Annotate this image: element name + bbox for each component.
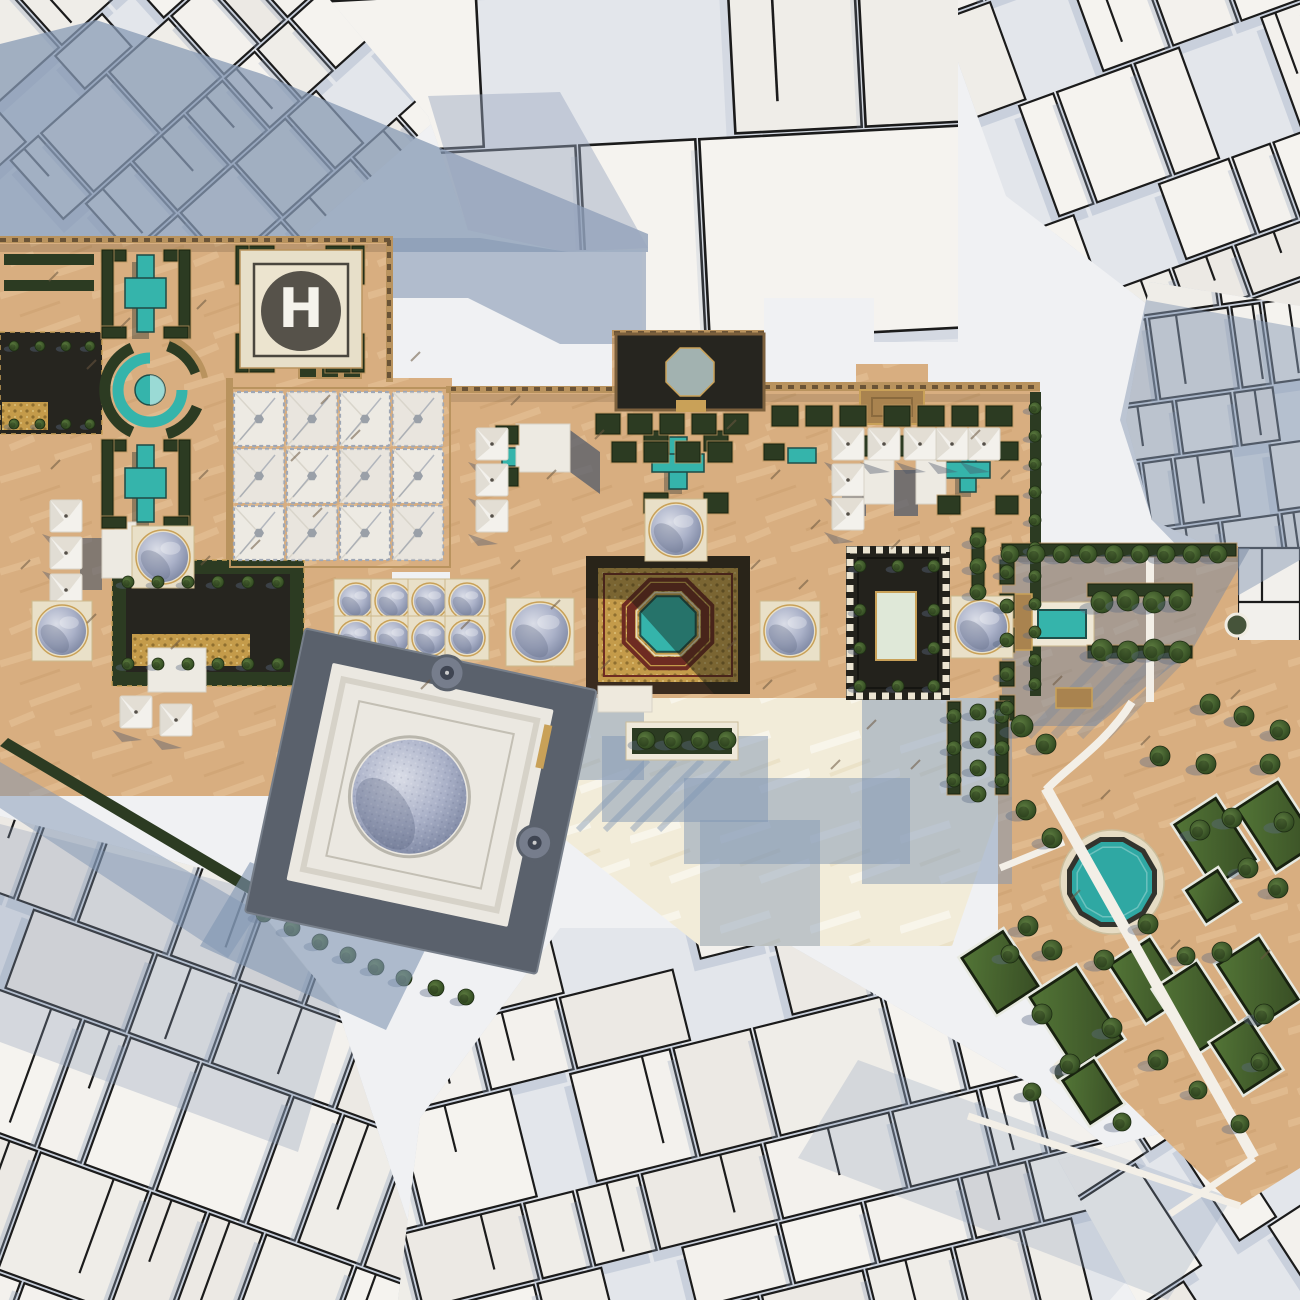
dome-highlight: [354, 591, 367, 599]
courts-rect: [876, 592, 916, 660]
tree-blotch: [1013, 722, 1025, 734]
tree-blotch: [996, 778, 1004, 786]
tree-blotch: [460, 994, 469, 1003]
tree-blotch: [1171, 596, 1183, 608]
hedge-box: [102, 250, 113, 338]
dome-highlight: [537, 615, 559, 630]
tree-blotch: [929, 608, 936, 615]
tree-blotch: [855, 564, 862, 571]
canopy-pin: [64, 551, 68, 555]
dome-highlight: [354, 628, 367, 636]
tree-blotch: [972, 737, 981, 746]
hedge-box: [938, 496, 960, 514]
tree-blotch: [972, 765, 981, 774]
tree-blotch: [1119, 596, 1131, 608]
hedge-box: [102, 517, 126, 528]
canopy-pin: [918, 442, 922, 446]
tree-blotch: [893, 684, 900, 691]
courts-ngon: [666, 348, 714, 396]
tree-blotch: [62, 344, 68, 350]
structures-rect: [516, 424, 570, 472]
canopy-pin: [846, 442, 850, 446]
walls-rect: [4, 254, 94, 265]
tree-blotch: [273, 662, 280, 669]
canopy-pin: [134, 710, 138, 714]
tree-blotch: [1030, 602, 1037, 609]
dome-highlight: [788, 616, 807, 628]
tree-blotch: [1093, 646, 1105, 658]
tree-blotch: [183, 662, 190, 669]
tree-blotch: [972, 791, 981, 800]
canopy-pin: [950, 442, 954, 446]
tree-blotch: [1030, 406, 1037, 413]
tree-blotch: [1062, 1061, 1073, 1072]
dome-highlight: [428, 591, 441, 599]
tree-blotch: [1030, 630, 1037, 637]
tree-blotch: [1270, 885, 1281, 896]
city-block: [727, 0, 861, 133]
canopy-pin: [882, 442, 886, 446]
ground-shadows-rect: [862, 698, 1012, 884]
hedge-box: [644, 442, 668, 462]
tree-blotch: [1030, 658, 1037, 665]
hedge-box: [179, 440, 190, 528]
tree-blotch: [1018, 807, 1029, 818]
dome-highlight: [674, 515, 694, 528]
tree-blotch: [1055, 551, 1065, 561]
pools-rect: [125, 468, 166, 498]
hedge-box: [704, 493, 728, 513]
tree-blotch: [1001, 570, 1009, 578]
tree-blotch: [36, 422, 42, 428]
courts-rect: [676, 400, 706, 412]
tree-blotch: [1202, 701, 1213, 712]
pools-rect: [1038, 610, 1086, 638]
tree-blotch: [36, 344, 42, 350]
hedge-box: [764, 444, 784, 460]
hedge-box: [884, 406, 910, 426]
hedge-box: [996, 496, 1018, 514]
tree-blotch: [1030, 682, 1037, 689]
structures-rect: [1056, 688, 1092, 708]
tree-blotch: [10, 344, 16, 350]
tree-blotch: [1140, 921, 1151, 932]
tree-blotch: [1020, 923, 1031, 934]
tree-blotch: [1030, 434, 1037, 441]
hedge-box: [179, 250, 190, 338]
tree-blotch: [62, 422, 68, 428]
tree-blotch: [1029, 551, 1039, 561]
canopy-pin: [846, 478, 850, 482]
tree-blotch: [10, 422, 16, 428]
tree-blotch: [720, 737, 730, 747]
tree-blotch: [1198, 761, 1209, 772]
hedge-box: [708, 442, 732, 462]
tree-blotch: [1211, 551, 1221, 561]
tree-blotch: [855, 646, 862, 653]
ground-shadows-rect: [700, 820, 820, 946]
pools-rect: [788, 448, 816, 463]
tree-blotch: [1253, 1059, 1263, 1069]
tree-blotch: [213, 580, 220, 587]
tree-blotch: [972, 709, 981, 718]
tree-blotch: [1240, 865, 1251, 876]
tree-blotch: [855, 608, 862, 615]
tree-blotch: [213, 662, 220, 669]
tree-blotch: [1030, 490, 1037, 497]
tree-blotch: [1119, 648, 1131, 660]
tree-blotch: [1233, 1121, 1243, 1131]
tree-blotch: [1003, 551, 1013, 561]
tree-blotch: [1179, 953, 1189, 963]
tree-blotch: [1107, 551, 1117, 561]
tree-blotch: [948, 714, 956, 722]
tree-blotch: [86, 344, 92, 350]
tree-blotch: [1192, 827, 1203, 838]
tree-blotch: [666, 737, 676, 747]
tree-blotch: [972, 563, 981, 572]
tree-blotch: [1185, 551, 1195, 561]
tree-blotch: [153, 662, 160, 669]
tree-blotch: [1001, 604, 1009, 612]
tree-blotch: [1224, 815, 1235, 826]
hedge-box: [660, 414, 684, 434]
tree-blotch: [1081, 551, 1091, 561]
hedge-box: [102, 440, 113, 528]
structures-rect: [894, 470, 918, 516]
dome-highlight: [465, 591, 478, 599]
hedge-box: [806, 406, 832, 426]
tree-blotch: [1256, 1011, 1267, 1022]
canopy-pin: [490, 514, 494, 518]
canopy-pin: [490, 442, 494, 446]
dome-highlight: [391, 628, 404, 636]
tree-blotch: [1030, 518, 1037, 525]
tree-blotch: [972, 537, 981, 546]
tree-blotch: [1038, 741, 1049, 752]
tree-blotch: [123, 580, 130, 587]
tree-blotch: [693, 737, 703, 747]
pools-circle: [1226, 614, 1248, 636]
tree-blotch: [1093, 598, 1105, 610]
tree-blotch: [243, 580, 250, 587]
dome-highlight: [391, 591, 404, 599]
pools-rect: [125, 278, 166, 308]
tree-blotch: [1262, 761, 1273, 772]
structures-rect: [80, 538, 102, 590]
hedge-box: [164, 327, 188, 338]
tree-blotch: [1034, 1011, 1045, 1022]
tree-blotch: [1104, 1025, 1115, 1036]
master-plan-canvas: H: [0, 0, 1300, 1300]
tree-blotch: [1214, 949, 1225, 960]
canopy-pin: [490, 478, 494, 482]
tree-blotch: [430, 985, 439, 994]
tree-blotch: [948, 778, 956, 786]
canopy-pin: [64, 514, 68, 518]
tree-blotch: [929, 564, 936, 571]
tree-blotch: [855, 684, 862, 691]
structures-rect: [102, 522, 136, 578]
tree-blotch: [972, 589, 981, 598]
tree-blotch: [929, 684, 936, 691]
tree-blotch: [86, 422, 92, 428]
tree-blotch: [893, 564, 900, 571]
dome-highlight: [980, 612, 1000, 625]
canopy-pin: [982, 442, 986, 446]
tree-blotch: [639, 737, 649, 747]
tree-blotch: [1044, 947, 1055, 958]
tree-blotch: [1096, 957, 1107, 968]
hedge-box: [952, 406, 978, 426]
walls-rect: [446, 386, 616, 393]
tree-blotch: [243, 662, 250, 669]
hedge-box: [676, 442, 700, 462]
tree-blotch: [1272, 727, 1283, 738]
tree-blotch: [1001, 706, 1009, 714]
hedge-box: [596, 414, 620, 434]
tree-blotch: [1171, 648, 1183, 660]
tree-blotch: [1030, 462, 1037, 469]
walls-rect: [4, 280, 94, 291]
hedge-box: [612, 442, 636, 462]
tree-blotch: [948, 746, 956, 754]
canopy-pin: [174, 718, 178, 722]
tree-blotch: [1003, 951, 1013, 961]
tree-blotch: [153, 580, 160, 587]
site-plan-svg: [0, 0, 1300, 1300]
tree-blotch: [1030, 574, 1037, 581]
hedge-box: [772, 406, 798, 426]
tent-canopy-grid: [230, 388, 450, 567]
canopy-pin: [846, 512, 850, 516]
hedge-box: [102, 327, 126, 338]
tree-blotch: [123, 662, 130, 669]
tree-blotch: [1001, 638, 1009, 646]
hedge-box: [628, 414, 652, 434]
tree-blotch: [1044, 835, 1055, 846]
tree-blotch: [1133, 551, 1143, 561]
tree-blotch: [1025, 1089, 1035, 1099]
tree-blotch: [1001, 672, 1009, 680]
hedge-box: [692, 414, 716, 434]
tree-blotch: [1145, 598, 1157, 610]
tree-blotch: [1159, 551, 1169, 561]
structures-rect: [598, 686, 652, 712]
tree-blotch: [1115, 1119, 1125, 1129]
hedge-box: [724, 414, 748, 434]
tree-blotch: [1152, 753, 1163, 764]
tree-blotch: [1150, 1057, 1161, 1068]
tree-blotch: [1276, 819, 1287, 830]
hedge-box: [918, 406, 944, 426]
tree-blotch: [183, 580, 190, 587]
dome-highlight: [161, 542, 181, 555]
tree-blotch: [996, 746, 1004, 754]
hedge-box: [840, 406, 866, 426]
tree-blotch: [1191, 1087, 1201, 1097]
canopy-pin: [64, 588, 68, 592]
dome-highlight: [428, 628, 441, 636]
tree-blotch: [1145, 646, 1157, 658]
dome-highlight: [60, 616, 79, 628]
tree-blotch: [1236, 713, 1247, 724]
hedge-box: [986, 406, 1012, 426]
tree-blotch: [929, 646, 936, 653]
helipad-label: H: [278, 277, 323, 340]
dome-highlight: [465, 628, 478, 636]
tree-blotch: [273, 580, 280, 587]
